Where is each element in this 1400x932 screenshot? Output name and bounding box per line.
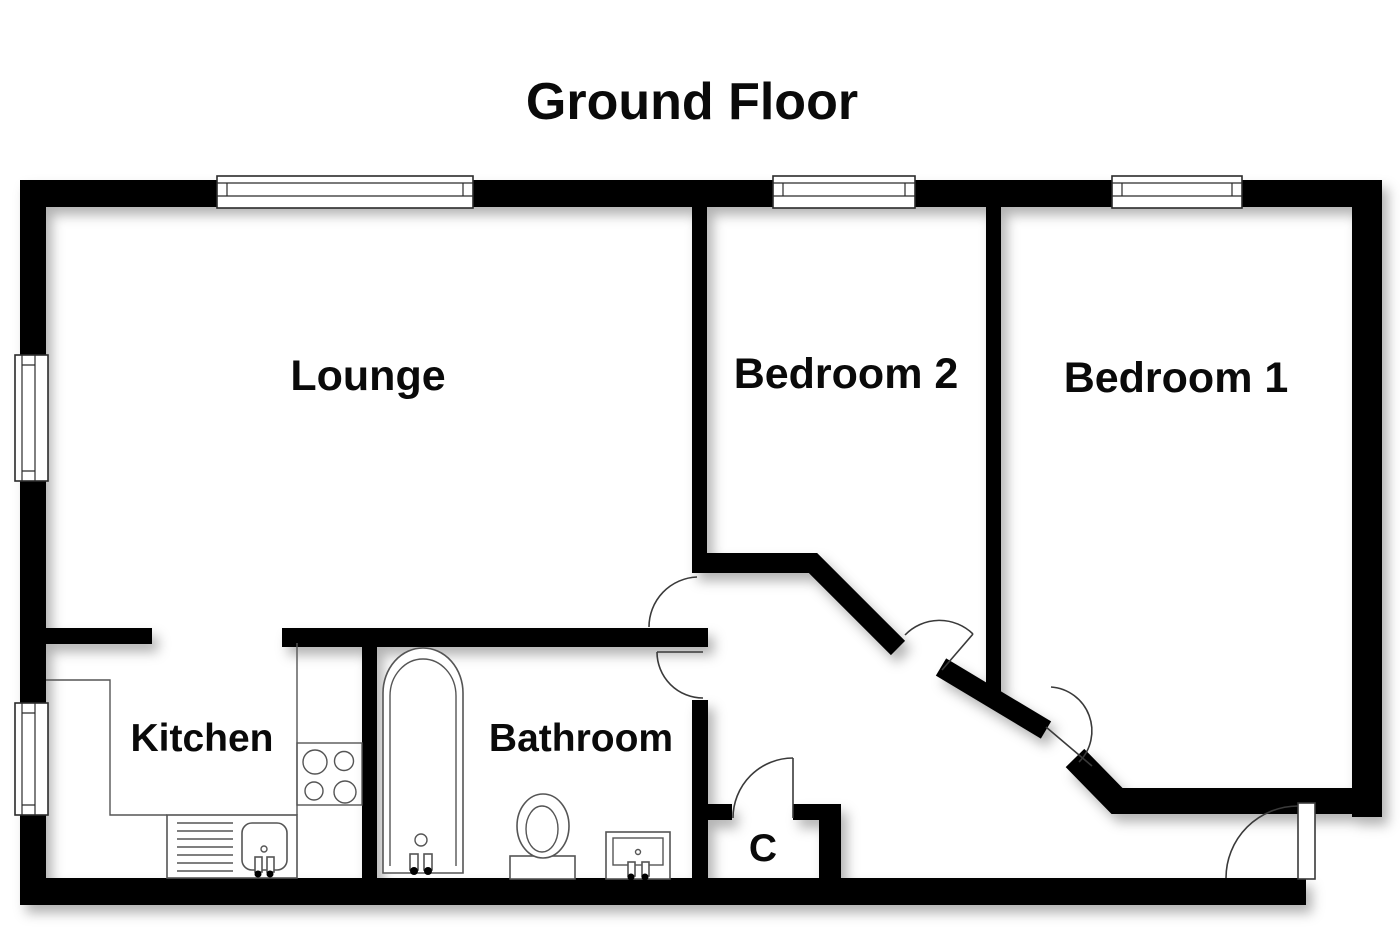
room-label-bedroom2: Bedroom 2 [734,350,959,398]
wall-cupboard-right [819,804,841,878]
fixtures [46,643,670,881]
entrance-door [1226,803,1315,879]
wall-cupboard-stub-left [708,804,732,820]
exterior-wall-bottom [20,878,1306,905]
cupboard-door [733,758,793,818]
room-label-bedroom1: Bedroom 1 [1064,354,1289,402]
window-kitchen-left [15,703,48,815]
floor-plan-page: Ground Floor Lounge Bedroom 2 Bedroom 1 … [0,0,1400,932]
window-bedroom1-top [1112,176,1242,208]
room-label-bathroom: Bathroom [489,717,673,760]
window-lounge-left [15,355,48,481]
lounge-door-arc [649,577,697,627]
window-bedroom2-top [773,176,915,208]
wall-bathroom-hall-divider [692,700,708,878]
window-lounge-top [217,176,473,208]
wall-hall-top-and-diagonal [707,563,898,648]
hob [297,743,362,805]
exterior-wall-right [1352,180,1382,817]
toilet [510,794,575,879]
bathroom-door [657,652,703,698]
floor-plan-drawing: Ground Floor Lounge Bedroom 2 Bedroom 1 … [0,0,1400,932]
wall-kitchen-bathroom-top [282,628,708,647]
wall-kitchen-bathroom-divider [362,628,377,878]
room-label-lounge: Lounge [290,352,445,400]
wall-cupboard-stub-right [793,804,821,820]
room-label-cupboard: C [749,827,777,870]
bedroom2-door [905,620,973,670]
basin [606,832,670,881]
page-title: Ground Floor [526,73,858,131]
wall-bedroom2-bedroom1-divider [986,207,1001,704]
wall-lounge-kitchen-stub [46,628,152,644]
kitchen-sink [167,815,297,878]
bedroom1-bottom-wall [1075,758,1382,801]
entrance-door-leaf [1298,803,1315,879]
wall-lounge-bedroom2-divider [692,207,707,573]
bathtub [383,648,463,875]
walls [20,180,1382,905]
bedroom1-door [1046,687,1092,766]
room-label-kitchen: Kitchen [130,717,273,760]
